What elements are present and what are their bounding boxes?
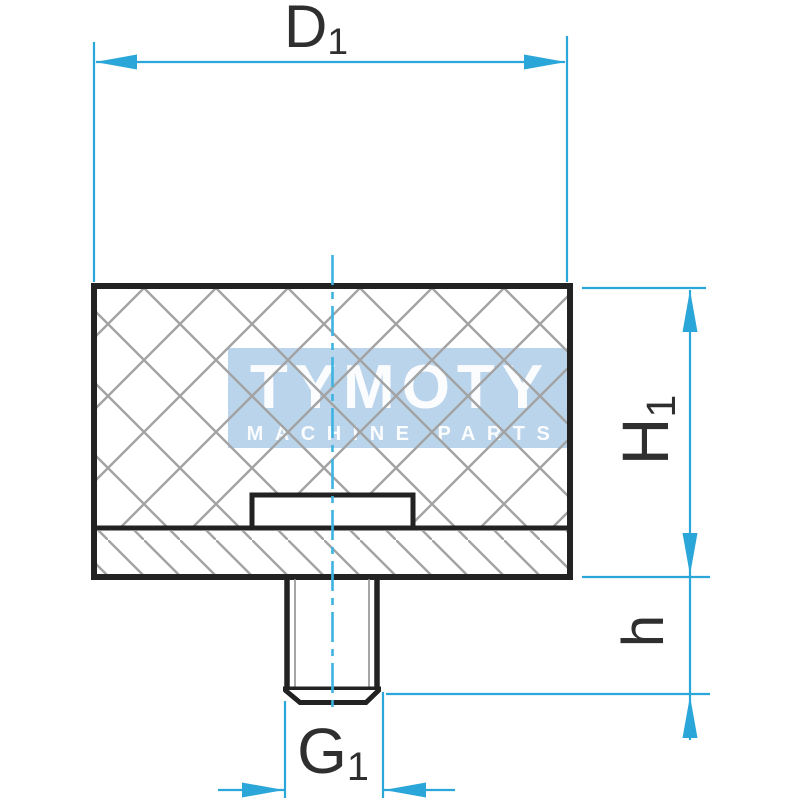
- dim-label-h1: H1: [612, 395, 678, 465]
- arrowhead-d1-left: [95, 55, 137, 70]
- arrowhead-d1-right: [524, 55, 566, 70]
- dim-label-d1: D1: [284, 0, 348, 57]
- arrowhead-g1-right: [384, 783, 426, 798]
- dim-label-d1-sub: 1: [327, 20, 348, 62]
- dim-label-h1-sub: 1: [638, 395, 684, 418]
- arrowhead-h1-top: [683, 290, 698, 332]
- arrowhead-h1-bottom: [683, 533, 698, 575]
- dim-label-h: h: [615, 615, 673, 647]
- dim-label-g1-main: G: [297, 715, 347, 787]
- dim-label-d1-main: D: [284, 0, 327, 60]
- dim-label-g1-sub: 1: [347, 745, 369, 789]
- arrowhead-g1-left: [242, 783, 284, 798]
- arrowhead-h-bottom: [683, 696, 698, 738]
- technical-drawing-page: TYMOTY MACHINE PARTS: [0, 0, 800, 800]
- dim-label-h1-main: H: [608, 418, 682, 466]
- dim-label-g1: G1: [297, 719, 369, 783]
- dim-label-h-main: h: [611, 615, 676, 647]
